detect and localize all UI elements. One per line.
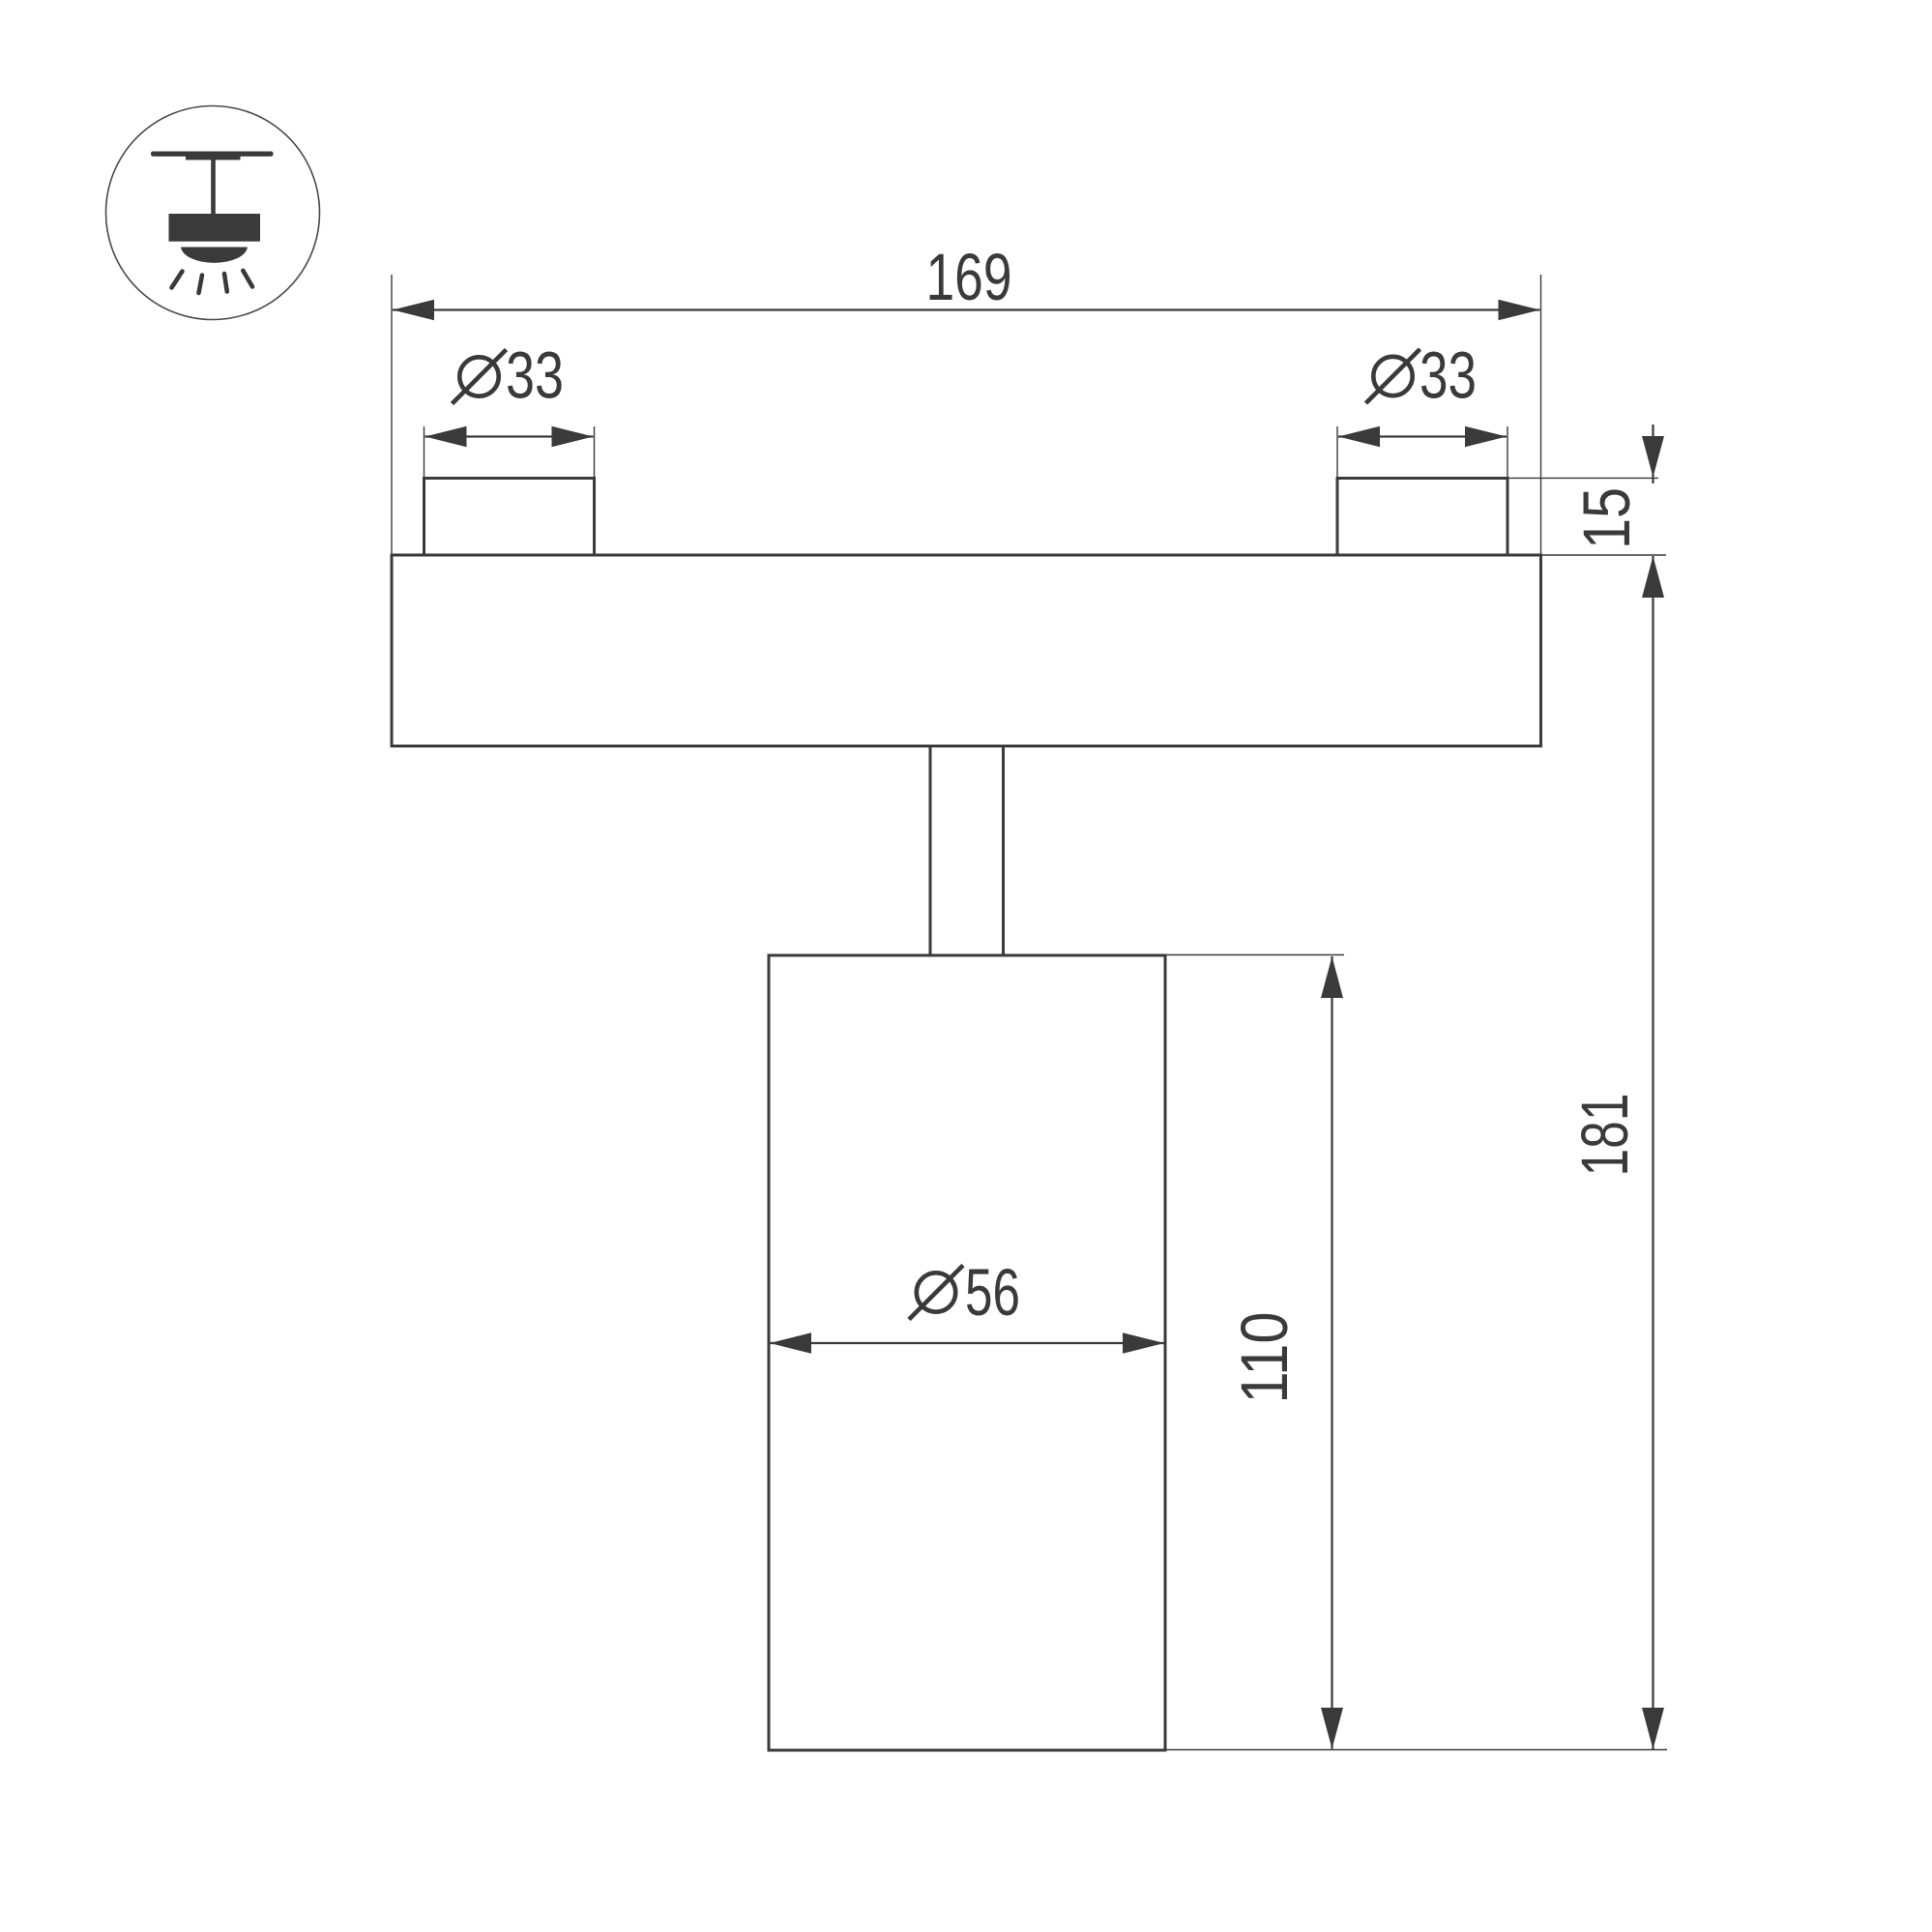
svg-text:110: 110 — [1227, 1312, 1302, 1404]
svg-text:56: 56 — [965, 1255, 1020, 1330]
svg-text:15: 15 — [1569, 487, 1644, 549]
svg-text:33: 33 — [506, 338, 564, 413]
svg-text:169: 169 — [926, 240, 1012, 314]
svg-text:33: 33 — [1420, 338, 1477, 413]
svg-text:181: 181 — [1567, 1094, 1642, 1177]
